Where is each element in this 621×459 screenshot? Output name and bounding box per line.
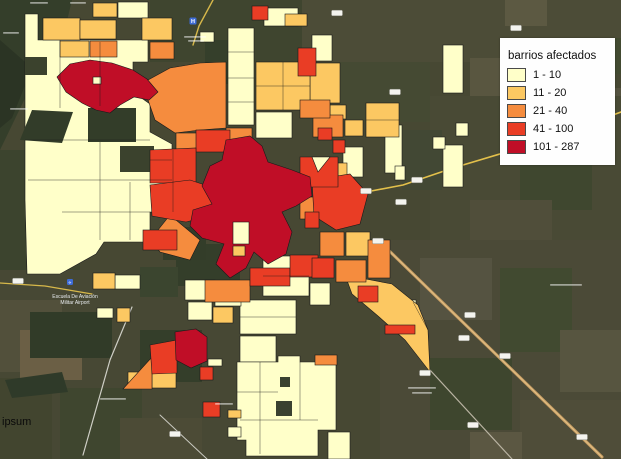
neighborhood-polygon — [358, 286, 378, 302]
route-shield-icon — [459, 335, 470, 341]
neighborhood-polygon — [280, 377, 290, 387]
map-viewport[interactable]: H✈Escuela De AviaciónMilitar Airport bar… — [0, 0, 621, 459]
neighborhood-polygon — [285, 14, 307, 26]
neighborhood-polygon — [395, 166, 405, 180]
route-shield-icon — [500, 353, 511, 359]
legend-label: 1 - 10 — [533, 69, 561, 81]
legend-swatch-class1 — [507, 68, 526, 82]
airport-label: Militar Airport — [60, 300, 90, 306]
legend-item: 21 - 40 — [507, 104, 615, 117]
neighborhood-polygon — [90, 41, 117, 57]
neighborhood-polygon — [252, 6, 268, 20]
map-label-smudge — [100, 398, 126, 400]
neighborhood-polygon — [93, 3, 117, 17]
route-shield-icon — [577, 434, 588, 440]
hospital-icon-glyph: H — [191, 19, 195, 25]
map-label-smudge — [215, 403, 233, 405]
map-label-smudge — [3, 32, 19, 34]
map-label-smudge — [550, 284, 582, 286]
satellite-patch — [430, 358, 512, 430]
neighborhood-polygon — [208, 359, 222, 366]
map-label-smudge — [412, 392, 432, 394]
satellite-patch — [420, 258, 492, 320]
neighborhood-polygon — [336, 260, 366, 282]
neighborhood-polygon — [233, 222, 249, 244]
legend-item: 1 - 10 — [507, 68, 615, 81]
satellite-patch — [120, 418, 202, 459]
legend-item: 41 - 100 — [507, 122, 615, 135]
route-shield-icon — [468, 422, 479, 428]
neighborhood-polygon — [276, 401, 292, 416]
neighborhood-polygon — [368, 240, 390, 278]
neighborhood-polygon — [256, 112, 292, 138]
neighborhood-polygon — [60, 41, 89, 57]
neighborhood-polygon — [140, 267, 178, 297]
neighborhood-polygon — [152, 372, 176, 388]
legend-label: 41 - 100 — [533, 123, 573, 135]
neighborhood-polygon — [43, 18, 80, 40]
neighborhood-polygon — [233, 246, 245, 256]
neighborhood-polygon — [228, 410, 241, 418]
neighborhood-polygon — [240, 336, 276, 362]
route-shield-icon — [412, 177, 423, 183]
neighborhood-polygon — [443, 45, 463, 93]
route-shield-icon — [332, 10, 343, 16]
airport-icon-glyph: ✈ — [68, 280, 72, 285]
neighborhood-polygon — [143, 230, 177, 250]
route-shield-icon — [390, 89, 401, 95]
neighborhood-polygon — [200, 367, 213, 380]
neighborhood-polygon — [175, 329, 207, 368]
neighborhood-polygon — [205, 280, 250, 302]
route-shield-icon — [361, 188, 372, 194]
legend-item: 101 - 287 — [507, 140, 615, 153]
neighborhood-polygon — [345, 120, 363, 136]
map-legend: barrios afectados 1 - 10 11 - 20 21 - 40… — [500, 38, 615, 165]
neighborhood-polygon — [25, 57, 47, 75]
route-shield-icon — [420, 370, 431, 376]
neighborhood-polygon — [93, 273, 115, 289]
neighborhood-polygon — [97, 308, 113, 318]
route-shield-icon — [396, 199, 407, 205]
satellite-patch — [560, 330, 621, 392]
neighborhood-polygon — [80, 20, 116, 39]
route-shield-icon — [511, 25, 522, 31]
map-label-smudge — [30, 2, 48, 4]
neighborhood-polygon — [305, 212, 319, 228]
legend-label: 21 - 40 — [533, 105, 567, 117]
neighborhood-polygon — [300, 100, 330, 118]
route-shield-icon — [465, 312, 476, 318]
route-shield-icon — [373, 238, 384, 244]
neighborhood-polygon — [120, 146, 154, 172]
neighborhood-polygon — [228, 427, 241, 437]
neighborhood-polygon — [142, 18, 172, 40]
neighborhood-polygon — [443, 145, 463, 187]
neighborhood-polygon — [318, 128, 332, 140]
neighborhood-polygon — [117, 308, 130, 322]
satellite-patch — [520, 400, 621, 459]
neighborhood-polygon — [346, 232, 370, 256]
route-shield-icon — [170, 431, 181, 437]
neighborhood-polygon — [320, 232, 344, 256]
neighborhood-polygon — [433, 137, 445, 149]
neighborhood-polygon — [385, 325, 415, 334]
neighborhood-polygon — [188, 302, 212, 320]
satellite-patch — [505, 0, 547, 26]
map-label-smudge — [184, 36, 206, 38]
legend-swatch-class4 — [507, 122, 526, 136]
legend-swatch-class2 — [507, 86, 526, 100]
neighborhood-polygon — [228, 28, 254, 125]
neighborhood-polygon — [150, 42, 174, 59]
neighborhood-polygon — [456, 123, 468, 136]
legend-label: 101 - 287 — [533, 141, 579, 153]
legend-swatch-class3 — [507, 104, 526, 118]
legend-title: barrios afectados — [508, 50, 615, 62]
legend-item: 11 - 20 — [507, 86, 615, 99]
legend-swatch-class5 — [507, 140, 526, 154]
neighborhood-polygon — [115, 275, 140, 289]
legend-label: 11 - 20 — [533, 87, 566, 99]
neighborhood-polygon — [312, 258, 334, 278]
neighborhood-polygon — [310, 283, 330, 305]
map-label-smudge — [10, 108, 28, 110]
neighborhood-polygon — [213, 307, 233, 323]
neighborhood-polygon — [118, 2, 148, 18]
map-label-smudge — [188, 40, 204, 42]
satellite-patch — [30, 312, 112, 358]
neighborhood-polygon — [250, 268, 290, 286]
watermark-text: ipsum — [2, 416, 31, 428]
neighborhood-polygon — [150, 340, 177, 374]
neighborhood-polygon — [315, 355, 337, 365]
map-label-smudge — [408, 387, 436, 389]
neighborhood-polygon — [88, 108, 136, 142]
satellite-patch — [470, 432, 522, 459]
neighborhood-polygon — [333, 140, 345, 153]
neighborhood-polygon — [298, 48, 316, 76]
neighborhood-polygon — [328, 432, 350, 459]
route-shield-icon — [13, 278, 24, 284]
map-label-smudge — [70, 2, 86, 4]
